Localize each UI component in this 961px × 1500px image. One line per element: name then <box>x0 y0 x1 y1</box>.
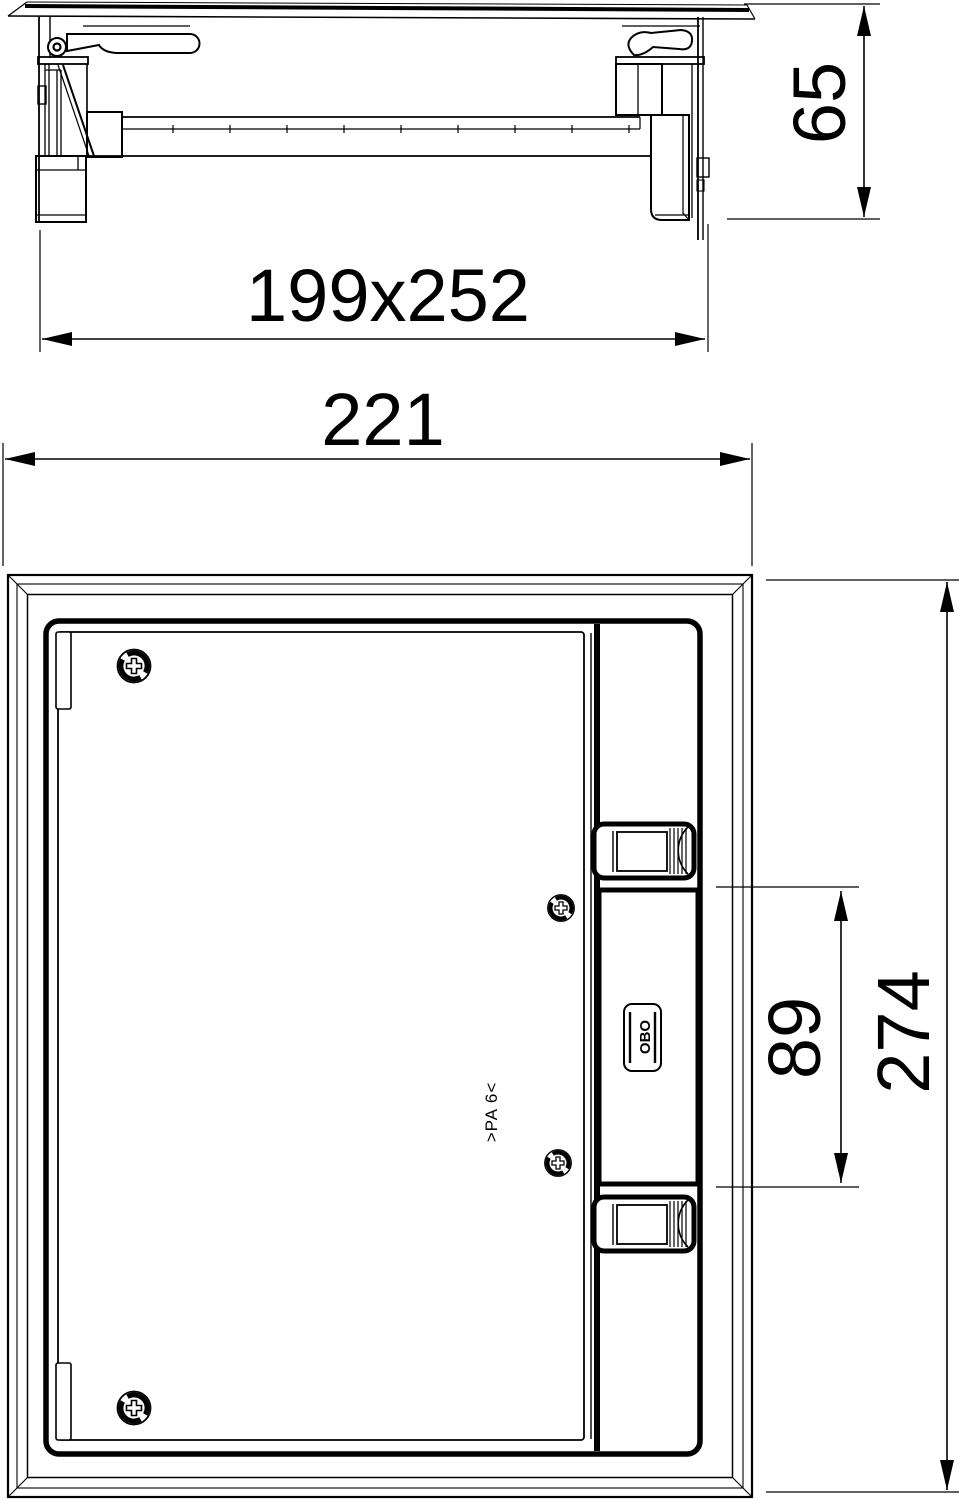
clamp-wedge-inner <box>58 65 89 156</box>
material-marking: >PA 6< <box>482 1082 501 1143</box>
screw-icon <box>548 895 574 921</box>
latch-upper <box>594 824 694 878</box>
latch-lower <box>594 1197 694 1251</box>
hinged-cover: >PA 6< <box>56 632 591 1440</box>
clamp-rods <box>45 64 61 156</box>
cover-plate-right-bevel <box>747 5 755 19</box>
dim-label: 65 <box>778 62 861 144</box>
section-view <box>8 2 755 240</box>
left-clamp-lever <box>48 34 200 56</box>
drawing-sheet: >PA 6< OBO 65 199x252 <box>0 0 961 1500</box>
screw-icon <box>545 1150 571 1176</box>
hinge-strip-bottom <box>56 1363 71 1440</box>
right-clamp-lever <box>628 30 692 55</box>
lever-pivot <box>48 38 66 56</box>
cover-plate-face <box>25 6 749 10</box>
cover-recess <box>46 621 700 1454</box>
lever-arm <box>628 30 692 55</box>
cover-plate-left-bevel <box>8 2 27 16</box>
bracket-block <box>616 64 662 115</box>
cover-plate <box>8 2 755 26</box>
hinge-strip-top <box>56 632 71 709</box>
cover-panel <box>58 632 584 1440</box>
dim-label: 221 <box>321 378 444 461</box>
plan-view: >PA 6< OBO <box>8 575 752 1497</box>
ext-lines <box>3 443 752 566</box>
dimension-annotations: 65 199x252 221 274 89 <box>3 4 959 1492</box>
dim-label: 274 <box>862 970 945 1093</box>
right-side-wall <box>698 17 703 240</box>
dim-box-size: 199x252 <box>40 224 708 352</box>
screw-icon <box>118 1392 151 1425</box>
clamp-wedge <box>63 65 94 156</box>
bracket-top-plate <box>616 57 704 64</box>
dim-label: 89 <box>753 997 836 1079</box>
frame-mid-edge <box>17 584 743 1488</box>
bracket-top-plate <box>38 57 88 64</box>
dim-overall-width: 221 <box>3 378 752 566</box>
box-trough <box>86 117 652 156</box>
obo-logo: OBO <box>624 1004 661 1071</box>
cover-plate-top-edge <box>27 2 747 5</box>
technical-drawing: >PA 6< OBO 65 199x252 <box>0 0 961 1500</box>
dim-section-height: 65 <box>727 4 880 219</box>
foot-details <box>36 156 86 215</box>
cover-plate-underside <box>8 16 755 19</box>
left-mounting-bracket <box>36 57 122 222</box>
right-mounting-bracket <box>616 57 709 220</box>
screw-icon <box>118 650 151 683</box>
lever-arm <box>67 34 200 53</box>
frame-inner-edge <box>28 595 733 1478</box>
latch-column: OBO <box>594 624 698 1451</box>
dim-device-cutout: 89 <box>716 887 859 1187</box>
logo-text: OBO <box>637 1020 654 1055</box>
dim-label: 199x252 <box>246 254 530 337</box>
